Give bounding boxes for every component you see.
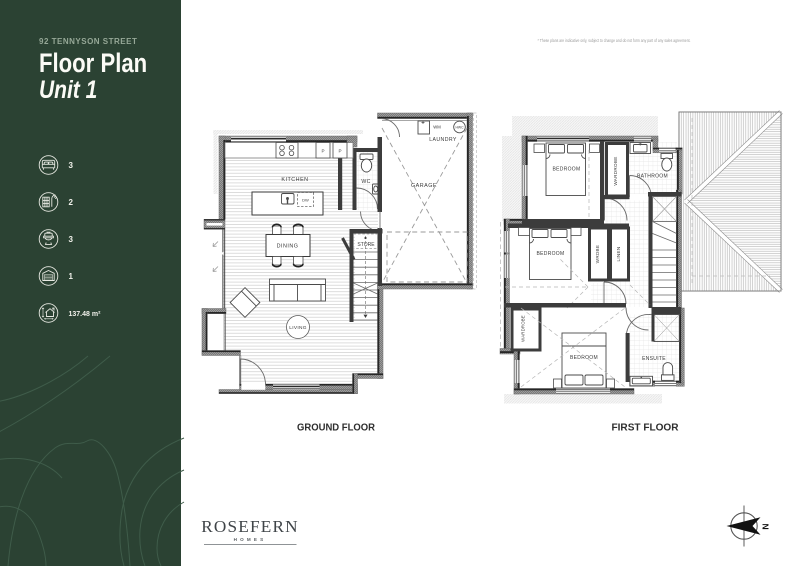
svg-text:LIVING: LIVING	[289, 325, 307, 331]
svg-text:LINEN: LINEN	[616, 246, 621, 261]
svg-text:N: N	[761, 523, 771, 529]
svg-text:WM: WM	[433, 125, 441, 130]
svg-text:WRDBE: WRDBE	[595, 245, 600, 264]
svg-text:2: 2	[69, 198, 74, 207]
svg-text:FIRST FLOOR: FIRST FLOOR	[612, 423, 680, 434]
svg-text:3: 3	[69, 161, 74, 170]
svg-text:BATHROOM: BATHROOM	[637, 174, 668, 180]
svg-text:* These plans are indicative o: * These plans are indicative only, subje…	[538, 38, 691, 43]
svg-text:137.48 m²: 137.48 m²	[69, 311, 102, 318]
svg-text:KITCHEN: KITCHEN	[281, 177, 308, 183]
svg-text:Unit 1: Unit 1	[39, 75, 97, 103]
svg-text:92 TENNYSON STREET: 92 TENNYSON STREET	[39, 37, 137, 46]
svg-text:ENSUITE: ENSUITE	[642, 356, 666, 362]
svg-text:BEDROOM: BEDROOM	[553, 167, 581, 173]
svg-text:GROUND FLOOR: GROUND FLOOR	[297, 423, 376, 434]
svg-text:DW: DW	[302, 198, 309, 203]
svg-text:WC: WC	[361, 179, 370, 185]
svg-text:P: P	[321, 149, 324, 154]
svg-text:DINING: DINING	[277, 244, 299, 250]
svg-text:GARAGE: GARAGE	[411, 183, 437, 189]
svg-text:HOMES: HOMES	[234, 537, 267, 542]
svg-text:STORE: STORE	[357, 242, 375, 248]
svg-text:WARDROBE: WARDROBE	[521, 315, 526, 342]
svg-text:Floor Plan: Floor Plan	[39, 49, 147, 79]
svg-text:P: P	[338, 149, 341, 154]
svg-text:3: 3	[69, 235, 74, 244]
svg-text:WARDROBE: WARDROBE	[613, 156, 618, 185]
svg-text:HWC: HWC	[455, 126, 464, 130]
svg-text:1: 1	[69, 272, 74, 281]
svg-text:LAUNDRY: LAUNDRY	[429, 137, 457, 143]
svg-text:BEDROOM: BEDROOM	[537, 251, 565, 257]
svg-text:ROSEFERN: ROSEFERN	[201, 517, 298, 536]
